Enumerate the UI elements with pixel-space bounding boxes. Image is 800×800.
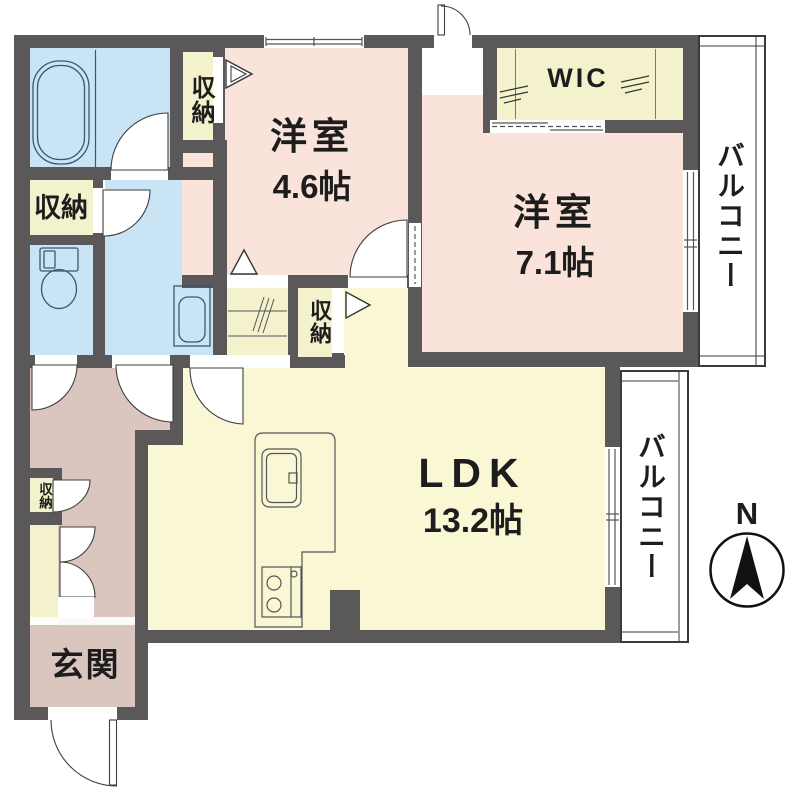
wall-left xyxy=(14,35,30,720)
closet-top-door xyxy=(213,57,223,123)
room-ldk-upper xyxy=(183,368,605,445)
opening-counter xyxy=(227,275,288,288)
door-gap-vestibule xyxy=(434,35,472,48)
bedroom2-area: 7.1帖 xyxy=(496,246,614,281)
top-door-leaf xyxy=(438,5,445,35)
compass-icon xyxy=(711,534,784,607)
window-ldk-right xyxy=(605,447,620,587)
wall-bedroom2-bottom xyxy=(408,352,698,367)
door-gap-washroom xyxy=(112,355,170,368)
vestibule xyxy=(422,48,483,95)
storage-left-label: 収納 xyxy=(29,194,93,222)
top-door-arc xyxy=(441,6,470,35)
genkan-step xyxy=(30,617,135,625)
wall-hall-right xyxy=(170,365,183,433)
door-gap-bath xyxy=(111,167,168,180)
storage-top-label: 収納 xyxy=(183,66,213,134)
room-bathroom xyxy=(30,48,170,167)
storage-tiny-label: 収納 xyxy=(33,479,51,512)
room-toilet xyxy=(30,245,93,355)
wic-label: WIC xyxy=(528,64,628,92)
wall-mid-vertical xyxy=(408,48,422,353)
wall-toilet-right xyxy=(93,233,105,365)
wall-closetleft-jamb xyxy=(93,180,103,188)
bedroom2-label: 洋室 xyxy=(498,194,612,233)
entrance-label: 玄関 xyxy=(38,648,133,683)
balcony-bottom-label: バルコニー xyxy=(633,424,665,589)
counter-nook xyxy=(227,288,288,357)
balcony-right-label: バルコニー xyxy=(712,128,744,303)
door-gap-bedroom1 xyxy=(348,275,407,288)
sliding-door-bedrooms xyxy=(409,223,421,287)
wall-pillar xyxy=(330,590,360,633)
closet-tiny-door xyxy=(53,480,62,511)
door-gap-genkan xyxy=(48,707,117,720)
wall-washroom-right xyxy=(213,140,227,367)
ldk-label: LDK xyxy=(400,452,545,495)
compass-north-label: N xyxy=(730,498,764,531)
room-ldk-nook xyxy=(344,288,408,368)
floor-plan: 洋室 4.6帖 洋室 7.1帖 LDK 13.2帖 玄関 WIC 収納 収納 収… xyxy=(0,0,800,800)
entrance-door-leaf xyxy=(110,720,117,785)
wall-ldk-bottom xyxy=(137,630,620,643)
bedroom1-label: 洋室 xyxy=(250,118,374,157)
ldk-area: 13.2帖 xyxy=(398,504,548,540)
door-gap-toilet xyxy=(35,355,77,368)
hallway-upper xyxy=(30,368,170,430)
window-bedroom1-top xyxy=(264,35,364,48)
shoe-cabinet xyxy=(30,525,58,625)
storage-center-label: 収納 xyxy=(301,289,331,355)
entrance-door-arc xyxy=(51,720,117,786)
window-bedroom2-right xyxy=(683,170,698,312)
wall-hall-step xyxy=(135,430,183,445)
closet-center-door xyxy=(332,288,344,353)
wall-closetleft-bottom xyxy=(27,235,93,245)
door-gap-ldk xyxy=(190,355,290,368)
wall-corridor-right xyxy=(135,430,148,720)
bedroom1-area: 4.6帖 xyxy=(248,170,376,205)
sliding-door-wic xyxy=(490,120,605,133)
